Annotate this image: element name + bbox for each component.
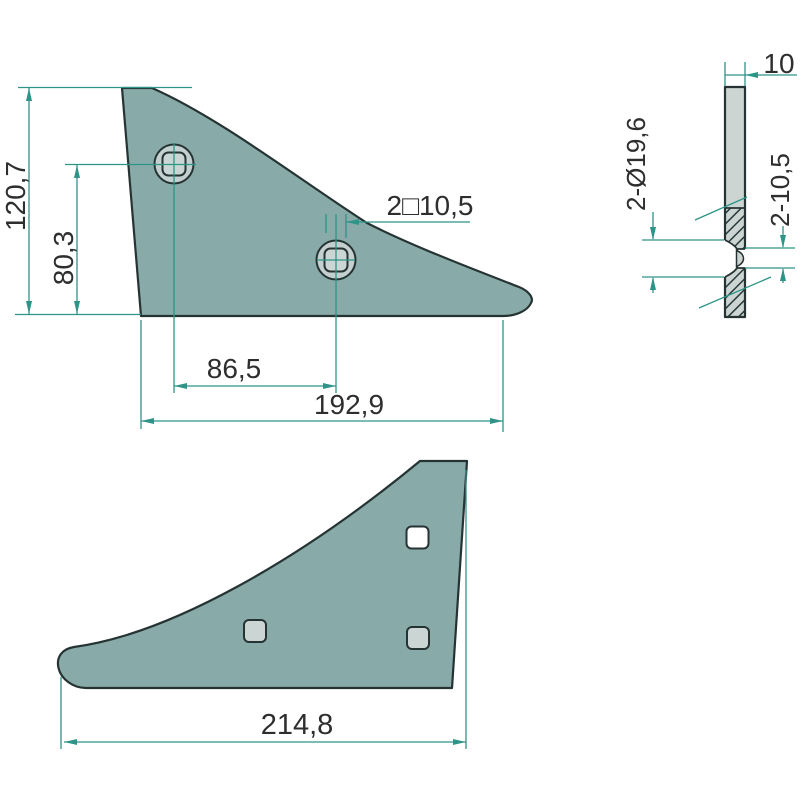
- arrow-left-214-8: [64, 739, 77, 745]
- section-strip-upper: [725, 87, 745, 208]
- label-total-length-back: 214,8: [261, 709, 334, 741]
- label-hole-spacing: 86,5: [207, 353, 262, 384]
- arrow-up-120-7: [26, 88, 32, 101]
- back-hole-middle: [244, 620, 266, 642]
- arrow-down-sq: [780, 235, 786, 248]
- arrow-down-120-7: [26, 301, 32, 314]
- label-square-holes: 2□10,5: [387, 190, 474, 221]
- back-hole-top-right: [407, 527, 429, 549]
- back-hole-bottom-right: [407, 627, 429, 649]
- label-countersink: 2-Ø19,6: [621, 117, 651, 211]
- label-total-height: 120,7: [0, 161, 31, 231]
- label-hole-height: 80,3: [48, 231, 79, 286]
- arrow-down-ctsk: [650, 227, 656, 240]
- arrow-right-192-9: [490, 418, 503, 424]
- back-view: [58, 461, 467, 688]
- arrow-left-86-5: [174, 383, 187, 389]
- label-thickness: 10: [763, 48, 794, 79]
- technical-drawing: 120,7 80,3 86,5 192,9 2□10,5 10 2-Ø19,6 …: [0, 0, 800, 800]
- label-total-length-side: 192,9: [314, 389, 384, 420]
- back-view-part-outline: [58, 461, 467, 688]
- arrow-up-ctsk: [650, 277, 656, 290]
- arrow-left-10: [745, 72, 758, 78]
- arrow-up-80-3: [74, 165, 80, 178]
- arrow-down-80-3: [74, 301, 80, 314]
- arrow-left-192-9: [141, 418, 154, 424]
- arrow-up-sq: [780, 268, 786, 281]
- arrow-right-214-8: [453, 739, 466, 745]
- label-square-hole-section: 2-10,5: [765, 153, 795, 227]
